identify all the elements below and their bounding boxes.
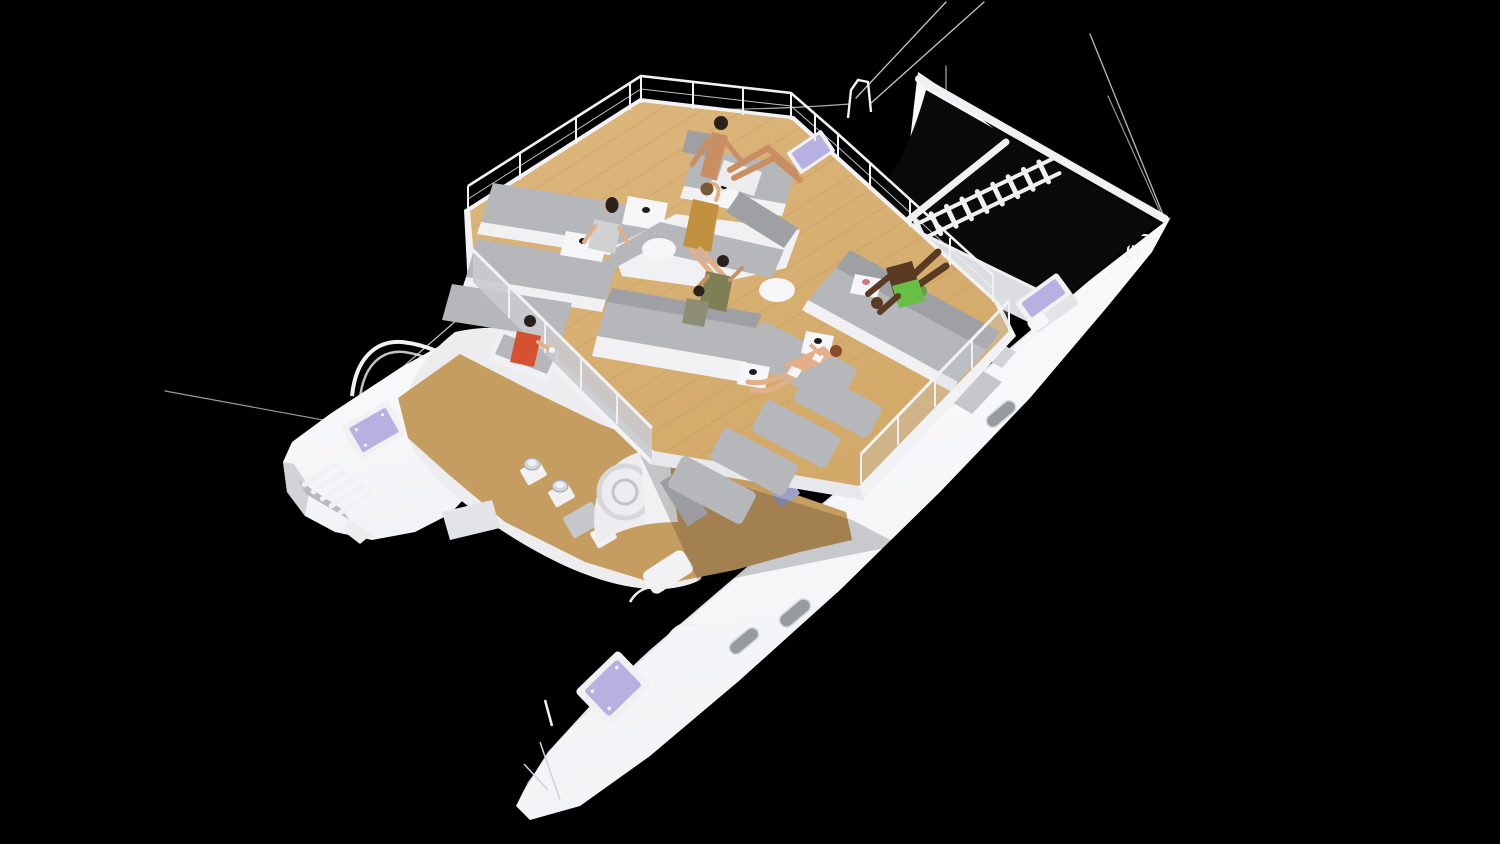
drink-cup: [805, 339, 812, 346]
pink-cup: [862, 279, 870, 285]
cup: [642, 207, 650, 213]
cup: [814, 338, 822, 344]
cup: [749, 369, 757, 375]
round-cocktail-table: [642, 238, 676, 260]
yacht-render: [0, 0, 1500, 844]
catamaran-scene: [0, 0, 1500, 844]
round-cocktail-table: [759, 278, 795, 302]
coffee-cup: [549, 347, 555, 353]
